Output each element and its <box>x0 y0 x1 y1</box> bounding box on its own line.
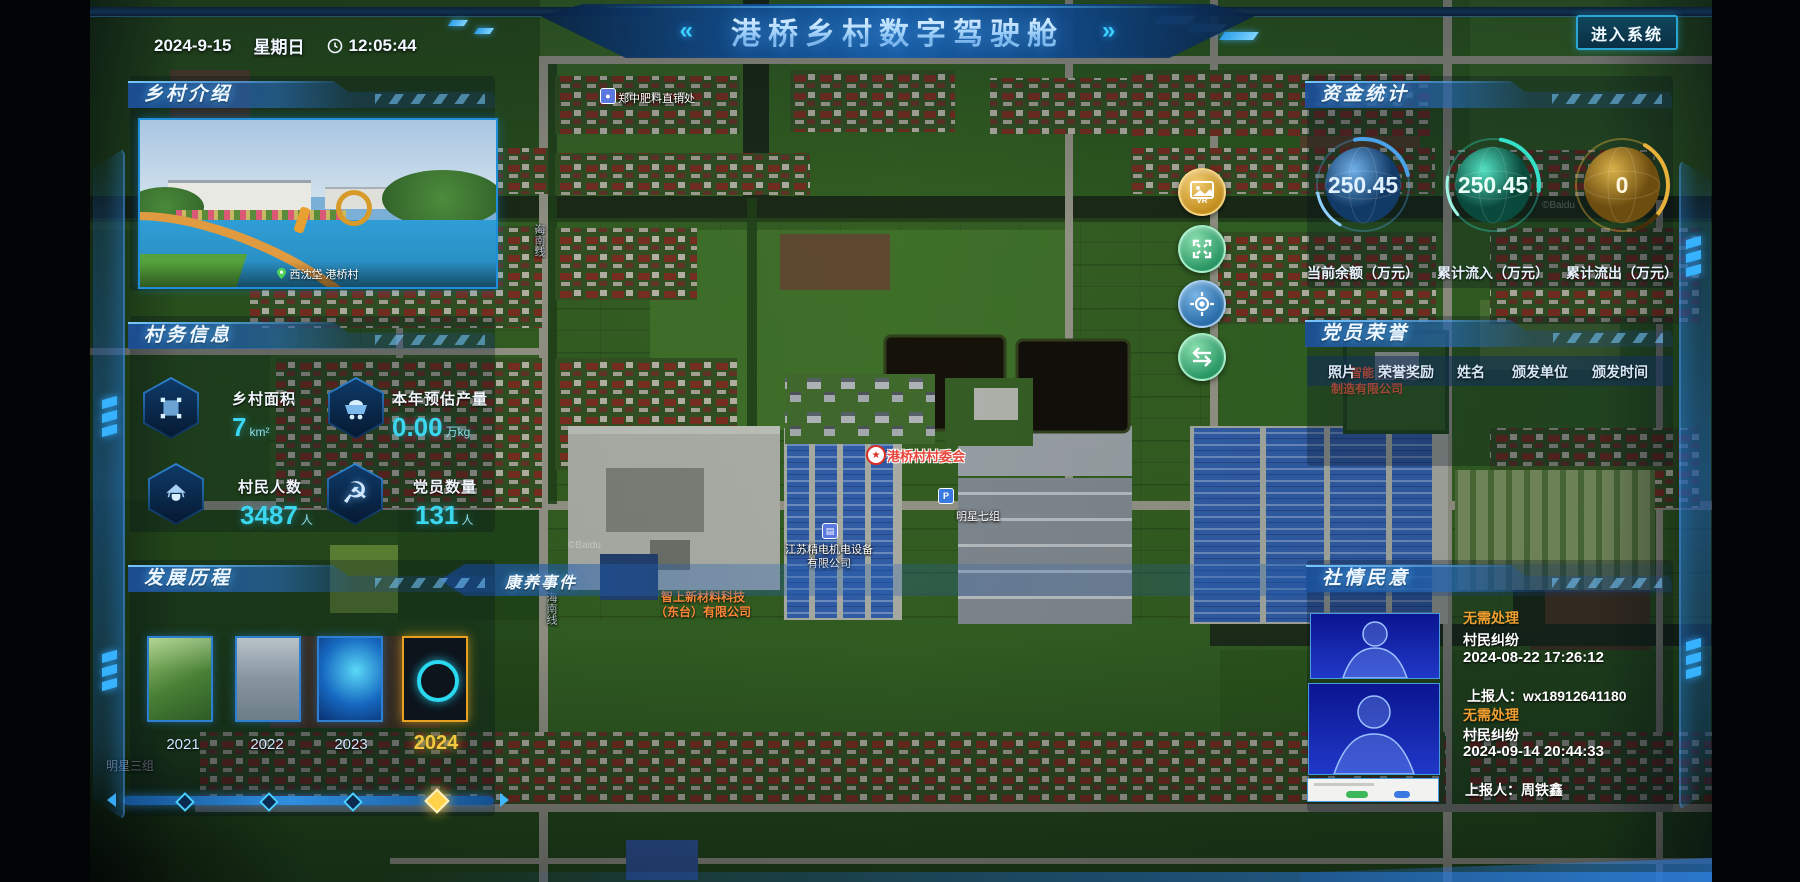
inflow-gauge: 250.45 <box>1438 130 1548 240</box>
store-poi-icon: ● <box>600 88 616 104</box>
dashboard-screen: ● 郑中肥料直销处 ★ 港桥村村委会 ▤ 江苏精电机电设备 有限公司 智上新材料… <box>0 0 1800 882</box>
map-label-fertilizer: 郑中肥料直销处 <box>618 90 695 106</box>
thumb-button-green <box>1346 791 1368 798</box>
village-committee-marker[interactable]: ★ <box>866 445 886 465</box>
star-icon: ★ <box>872 450 881 461</box>
hammer-sickle-icon: ☭ <box>342 479 369 509</box>
factory-poi-icon: ▤ <box>822 523 838 539</box>
sentiment-thumb-2[interactable] <box>1308 683 1440 775</box>
hatch-decoration <box>1552 578 1662 588</box>
outflow-gauge-label: 累计流出（万元） <box>1542 263 1702 283</box>
hatch-decoration <box>375 335 485 345</box>
sentiment-thumb-1[interactable] <box>1310 613 1440 679</box>
map-label-mfg-faint2: 制造有限公司 <box>1331 380 1403 397</box>
village-photo[interactable]: 西沈垈 港桥村 <box>138 118 498 289</box>
balance-value: 250.45 <box>1328 172 1399 198</box>
hatch-decoration <box>1553 333 1663 343</box>
map-label-road-2: 海南线 <box>543 592 559 625</box>
pin-icon <box>277 268 286 279</box>
sentiment-status-1: 无需处理 <box>1463 608 1519 628</box>
sentiment-datetime-2: 2024-09-14 20:44:33 <box>1463 743 1604 760</box>
map-watermark-1: ©Baidu <box>568 540 601 551</box>
fullscreen-button[interactable] <box>1178 225 1226 273</box>
honor-col-award: 荣誉奖励 <box>1378 362 1434 382</box>
year-2022[interactable]: 2022 <box>232 736 302 753</box>
yield-stat-value: 0.00万kg <box>392 412 470 443</box>
sentiment-reporter-1: 上报人：wx18912641180 <box>1467 686 1627 706</box>
photo-arch <box>336 190 372 226</box>
vr-photo-button[interactable]: VR <box>1178 168 1226 216</box>
year-2021[interactable]: 2021 <box>148 736 218 753</box>
honor-col-date: 颁发时间 <box>1592 362 1648 382</box>
health-events-label[interactable]: 康养事件 <box>505 569 577 593</box>
hatch-decoration <box>1552 94 1662 104</box>
hatch-decoration <box>375 578 485 588</box>
map-label-factory2-line2: （东台）有限公司 <box>613 603 793 620</box>
hologram-person-icon <box>1309 684 1439 774</box>
svg-text:VR: VR <box>1196 196 1207 204</box>
locate-button[interactable] <box>1178 280 1226 328</box>
farmer-hat-icon <box>163 481 189 507</box>
sentiment-panel-title: 社情民意 <box>1322 567 1410 591</box>
development-thumb-2024[interactable] <box>402 636 468 722</box>
honor-panel-title: 党员荣誉 <box>1321 322 1409 346</box>
inflow-value: 250.45 <box>1458 172 1529 198</box>
development-thumb-2023[interactable] <box>317 636 383 722</box>
sentiment-type-1: 村民纠纷 <box>1463 630 1519 650</box>
accent-slash <box>1219 32 1259 40</box>
sentiment-reporter-2: 上报人：周铁鑫 <box>1465 780 1563 800</box>
map-label-committee: 港桥村村委会 <box>887 446 965 465</box>
year-2024[interactable]: 2024 <box>401 732 471 755</box>
sentiment-type-2: 村民纠纷 <box>1463 725 1519 745</box>
date-text: 2024-9-15 <box>154 36 232 56</box>
timeline-next-arrow[interactable] <box>500 793 509 807</box>
crosshair-icon <box>1189 291 1215 317</box>
population-stat-value: 3487人 <box>240 500 313 531</box>
switch-view-button[interactable] <box>1178 333 1226 381</box>
time-text: 12:05:44 <box>349 36 417 56</box>
map-label-group7: 明星七组 <box>956 508 1000 524</box>
sentiment-status-2: 无需处理 <box>1463 705 1519 725</box>
map-label-road-1: 海南线 <box>531 224 547 257</box>
thumb-ring-decoration <box>417 660 459 702</box>
year-2023[interactable]: 2023 <box>316 736 386 753</box>
left-chevron-icon: « <box>680 17 693 45</box>
party-stat-value: 131人 <box>415 500 473 531</box>
balance-gauge: 250.45 <box>1308 130 1418 240</box>
right-chevron-icon: » <box>1102 17 1115 45</box>
yield-stat-label: 本年预估产量 <box>392 388 488 409</box>
picture-icon: VR <box>1189 180 1215 204</box>
left-frame-decoration <box>93 148 125 820</box>
hologram-person-icon <box>1311 614 1439 678</box>
population-stat-label: 村民人数 <box>238 476 302 497</box>
development-thumb-2021[interactable] <box>147 636 213 722</box>
honor-col-photo: 照片 <box>1328 362 1356 382</box>
parking-icon: P <box>938 488 954 504</box>
datetime-display: 2024-9-15 星期日 12:05:44 <box>154 33 417 58</box>
photo-caption: 西沈垈 港桥村 <box>140 266 496 282</box>
outflow-value: 0 <box>1616 172 1629 198</box>
sentiment-datetime-1: 2024-08-22 17:26:12 <box>1463 649 1604 666</box>
honor-col-issuer: 颁发单位 <box>1512 362 1568 382</box>
hatch-decoration <box>375 94 485 104</box>
area-stat-value: 7km² <box>232 412 269 443</box>
development-thumb-2022[interactable] <box>235 636 301 722</box>
thumb-text-line <box>1314 783 1374 786</box>
honor-col-name: 姓名 <box>1457 362 1485 382</box>
funds-panel-title: 资金统计 <box>1321 83 1409 107</box>
development-panel-title: 发展历程 <box>144 567 232 591</box>
info-panel-title: 村务信息 <box>144 324 232 348</box>
photo-tree <box>382 170 498 227</box>
outflow-gauge: 0 <box>1567 130 1677 240</box>
expand-arrows-icon <box>1190 237 1214 261</box>
enter-system-button[interactable]: 进入系统 <box>1576 15 1678 50</box>
sentiment-thumb-3-partial[interactable] <box>1307 778 1439 802</box>
swap-arrows-icon <box>1189 346 1215 368</box>
area-stat-label: 乡村面积 <box>232 388 296 409</box>
weekday-text: 星期日 <box>254 33 305 58</box>
clock-icon <box>327 38 343 54</box>
title-banner: « 港桥乡村数字驾驶舱 » <box>540 4 1255 58</box>
area-icon <box>158 395 184 421</box>
dashboard-content: ● 郑中肥料直销处 ★ 港桥村村委会 ▤ 江苏精电机电设备 有限公司 智上新材料… <box>90 0 1712 882</box>
thumb-button-blue <box>1394 791 1410 798</box>
cart-icon <box>342 395 370 421</box>
party-stat-label: 党员数量 <box>413 476 477 497</box>
page-title: 港桥乡村数字驾驶舱 <box>731 9 1064 53</box>
intro-panel-title: 乡村介绍 <box>144 83 232 107</box>
